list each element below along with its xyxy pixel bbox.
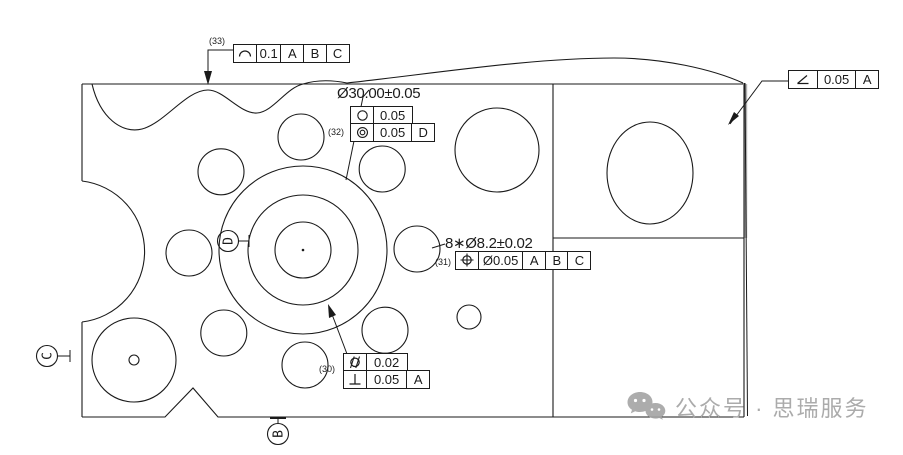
leader-holes-callout (432, 244, 445, 248)
datum-letter-B: B (272, 430, 287, 438)
datum-letter-D: D (222, 237, 237, 245)
perpendicularity-tolerance-value: 0.05 (366, 370, 408, 389)
profile-of-a-line-symbol-icon (233, 44, 257, 63)
fcf-true-position: Ø0.05 A B C (455, 251, 591, 270)
wechat-icon (626, 390, 666, 424)
true-position-symbol-icon (455, 251, 479, 270)
bolt-hole (198, 149, 244, 195)
circularity-symbol-icon (350, 106, 374, 125)
profile-datum-a: A (280, 44, 304, 63)
angularity-datum: A (855, 70, 879, 89)
fcf-cylindricity-row: 0.02 (343, 353, 430, 372)
bolt-hole (278, 114, 324, 160)
part-top-wavy-profile (92, 81, 347, 130)
part-outline-drawing: C B D (0, 0, 903, 455)
position-datum-c: C (567, 251, 591, 270)
position-tolerance-value: Ø0.05 (478, 251, 524, 270)
bolt-hole (394, 226, 440, 272)
callout-number-32: (32) (328, 127, 344, 137)
profile-tolerance-value: 0.1 (256, 44, 282, 63)
datum-letter-C: C (41, 352, 56, 360)
part-top-curved-profile (347, 58, 743, 83)
hole-pattern-dimension: 8∗Ø8.2±0.02 (445, 234, 533, 252)
fcf-hub: 0.05 0.05 D (350, 106, 435, 142)
fcf-bore: 0.02 0.05 A (343, 353, 430, 389)
angularity-symbol-icon (788, 70, 818, 89)
datum-leader-D (239, 235, 250, 247)
profile-datum-b: B (303, 44, 327, 63)
datum-target-D: D (218, 231, 250, 252)
position-datum-b: B (545, 251, 569, 270)
fcf-profile-of-a-line: 0.1 A B C (233, 44, 350, 63)
fcf-concentricity-row: 0.05 D (350, 123, 435, 142)
callout-number-33: (33) (209, 36, 225, 46)
bolt-hole (362, 307, 408, 353)
bolt-hole (359, 146, 405, 192)
large-hole-upper (455, 108, 539, 192)
leader-profile-callout (208, 50, 233, 72)
arrowhead-profile-callout (204, 71, 212, 85)
hub-center-mark (302, 249, 305, 252)
watermark: 公众号 · 思瑞服务 (626, 390, 869, 424)
datum-leader-C (58, 350, 70, 362)
hub-diameter-dimension: Ø30.00±0.05 (337, 85, 420, 102)
bolt-hole (201, 310, 247, 356)
arrowhead-bore-callout (328, 304, 336, 318)
cylindricity-tolerance-value: 0.02 (366, 353, 408, 372)
profile-datum-c: C (326, 44, 350, 63)
fcf-perpendicularity-row: 0.05 A (343, 370, 430, 389)
datum-target-B: B (268, 417, 289, 445)
perpendicularity-datum: A (406, 370, 430, 389)
fcf-circularity-row: 0.05 (350, 106, 435, 125)
small-hole (457, 305, 481, 329)
watermark-text: 公众号 · 思瑞服务 (675, 391, 869, 423)
angularity-tolerance-value: 0.05 (817, 70, 857, 89)
concentricity-tolerance-value: 0.05 (373, 123, 413, 142)
bolt-hole (166, 230, 212, 276)
cylindricity-symbol-icon (343, 353, 367, 372)
concentricity-symbol-icon (350, 123, 374, 142)
datum-target-C: C (37, 346, 71, 367)
position-datum-a: A (522, 251, 546, 270)
leader-angularity-callout (730, 81, 788, 124)
bottom-left-boss-center (129, 355, 139, 365)
right-section-hole (607, 122, 693, 224)
concentricity-datum: D (411, 123, 435, 142)
callout-number-31: (31) (435, 257, 451, 267)
bottom-left-boss (92, 318, 176, 402)
callout-number-30: (30) (319, 364, 335, 374)
engineering-drawing-canvas: C B D (33) 0.1 A B C Ø30.00±0.05 (32) (0, 0, 903, 455)
left-edge-cutout-arc (82, 181, 145, 322)
circularity-tolerance-value: 0.05 (373, 106, 413, 125)
perpendicularity-symbol-icon (343, 370, 367, 389)
fcf-angularity: 0.05 A (788, 70, 879, 89)
